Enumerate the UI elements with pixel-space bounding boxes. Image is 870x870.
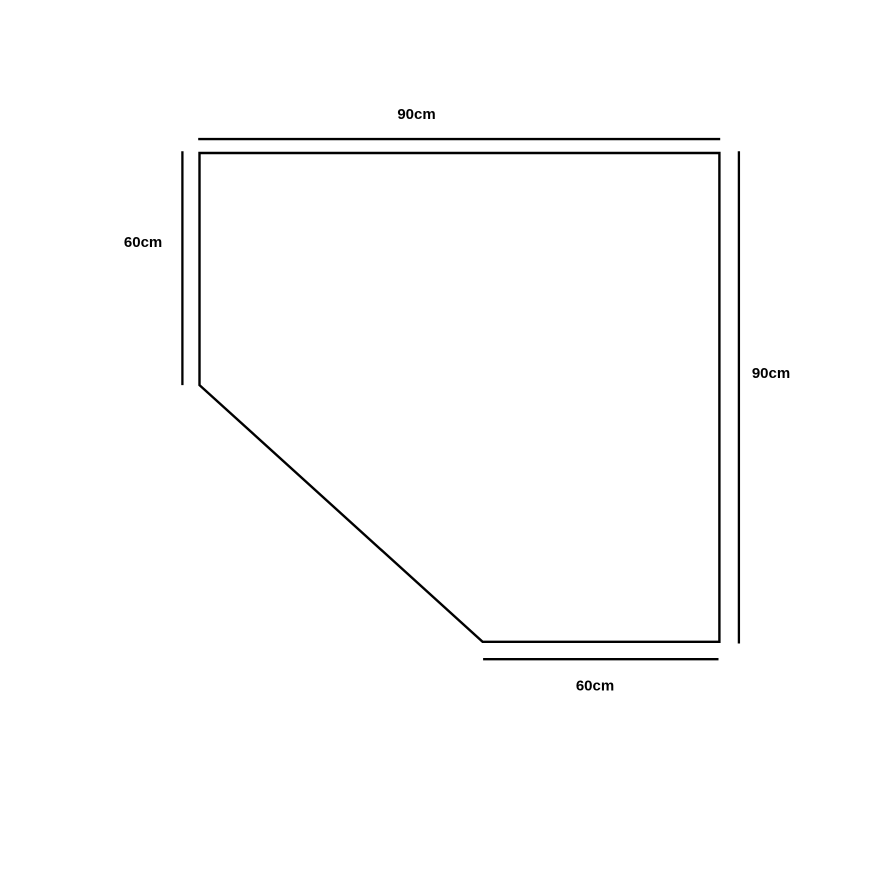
svg-text:90cm: 90cm — [397, 106, 435, 123]
svg-text:90cm: 90cm — [752, 365, 790, 382]
svg-text:60cm: 60cm — [124, 234, 162, 251]
svg-text:60cm: 60cm — [576, 678, 614, 695]
